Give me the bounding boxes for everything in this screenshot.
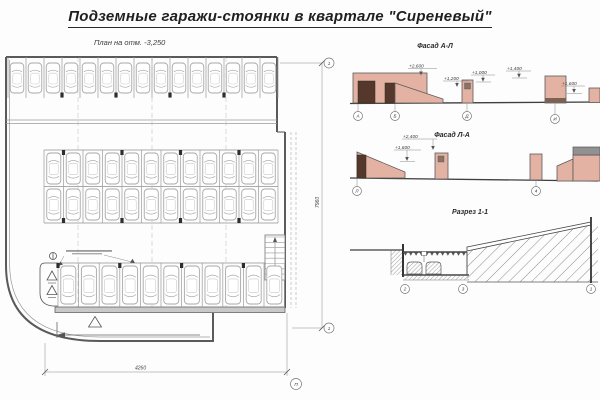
column-mark bbox=[168, 93, 171, 98]
car-top-view bbox=[102, 266, 117, 304]
axis-bubble: 4 bbox=[535, 189, 538, 194]
drawing-sheet: Подземные гаражи-стоянки в квартале "Сир… bbox=[0, 0, 600, 400]
ceiling-ribs bbox=[404, 252, 466, 256]
axis-bubble: 3 bbox=[462, 287, 465, 292]
parking-row-bottom bbox=[56, 263, 284, 307]
car-top-view bbox=[222, 189, 236, 220]
ramp-triangle-icon bbox=[89, 317, 102, 328]
car-top-view bbox=[226, 266, 241, 304]
column-mark bbox=[222, 93, 225, 98]
edge-block bbox=[589, 88, 600, 103]
plan-height-dim: 7960 bbox=[315, 197, 321, 208]
column-mark bbox=[180, 263, 183, 268]
car-top-view bbox=[123, 266, 138, 304]
column-mark bbox=[114, 93, 117, 98]
ramp-arrow bbox=[57, 317, 200, 339]
car-top-view bbox=[47, 153, 61, 184]
warning-triangle-icon bbox=[47, 271, 57, 280]
column-mark bbox=[56, 263, 59, 268]
car-top-view bbox=[28, 63, 42, 93]
car-top-view bbox=[86, 153, 100, 184]
car-top-view bbox=[203, 153, 217, 184]
car-side-view bbox=[407, 262, 422, 274]
column-mark bbox=[60, 93, 63, 98]
axes-f1: А Б Д И bbox=[354, 103, 560, 124]
column-mark bbox=[237, 150, 240, 155]
building-wing bbox=[557, 159, 573, 181]
alcove bbox=[40, 253, 58, 307]
facade-a-l-label: Фасад А-Л bbox=[417, 42, 453, 50]
car-top-view bbox=[262, 63, 276, 93]
car-top-view bbox=[164, 266, 179, 304]
parking-row-top bbox=[8, 57, 278, 98]
car-top-view bbox=[47, 189, 61, 220]
section-label: Разрез 1-1 bbox=[452, 209, 488, 216]
car-top-view bbox=[190, 63, 204, 93]
column-mark bbox=[242, 263, 245, 268]
sheet-title-text: Подземные гаражи-стоянки в квартале "Сир… bbox=[68, 8, 492, 28]
column-mark bbox=[62, 150, 65, 155]
warning-triangle-icon bbox=[47, 286, 57, 295]
car-top-view bbox=[222, 153, 236, 184]
car-top-view bbox=[261, 189, 275, 220]
sheet-title: Подземные гаражи-стоянки в квартале "Сир… bbox=[60, 8, 500, 28]
car-top-view bbox=[242, 153, 256, 184]
parking-row-mid-lower bbox=[44, 187, 278, 224]
section-1-1: Разрез 1-1 2 3 bbox=[350, 209, 598, 294]
column-mark bbox=[179, 218, 182, 223]
pillar bbox=[530, 154, 542, 180]
car-top-view bbox=[184, 266, 199, 304]
car-top-view bbox=[125, 189, 139, 220]
car-top-view bbox=[118, 63, 132, 93]
garage-door bbox=[385, 83, 395, 103]
car-top-view bbox=[164, 153, 178, 184]
car-top-view bbox=[164, 189, 178, 220]
axis-bubble: 2 bbox=[403, 287, 407, 292]
car-top-view bbox=[205, 266, 220, 304]
elevation-marks-f2: +2,400 +1,600 bbox=[394, 134, 437, 162]
car-top-view bbox=[81, 266, 96, 304]
plan-width-dim: 4260 bbox=[135, 366, 146, 372]
column-mark bbox=[120, 218, 123, 223]
axes-sec: 2 3 1 bbox=[401, 285, 596, 294]
column-mark bbox=[120, 150, 123, 155]
axis-bubble: А bbox=[355, 114, 359, 119]
car-top-view bbox=[100, 63, 114, 93]
car-top-view bbox=[10, 63, 24, 93]
illegible-annotation bbox=[58, 250, 135, 266]
section-mark-top: 1 bbox=[328, 61, 331, 66]
car-top-view bbox=[86, 189, 100, 220]
axes-f2: Л 4 bbox=[353, 178, 541, 196]
bottom-dimension: 4260 П bbox=[42, 313, 302, 390]
bottom-wall bbox=[55, 307, 285, 313]
facade-l-a: Фасад Л-А +2,400 +1,600 bbox=[350, 131, 600, 196]
right-dimension: 7960 1 1 bbox=[280, 58, 334, 333]
car-top-view bbox=[208, 63, 222, 93]
column-mark bbox=[62, 218, 65, 223]
car-side-view bbox=[426, 262, 441, 274]
car-top-view bbox=[66, 189, 80, 220]
axis-bubble: 1 bbox=[590, 287, 593, 292]
garage-door bbox=[358, 81, 375, 103]
car-top-view bbox=[246, 266, 261, 304]
elevations-drawing: Фасад А-Л +2,600 +1,200 +1,000 bbox=[345, 38, 600, 308]
column-mark bbox=[118, 263, 121, 268]
column-mark bbox=[179, 150, 182, 155]
car-top-view bbox=[154, 63, 168, 93]
car-top-view bbox=[61, 266, 76, 304]
car-top-view bbox=[82, 63, 96, 93]
earth-hatch bbox=[467, 224, 598, 283]
parking-row-mid-upper bbox=[44, 150, 278, 187]
car-top-view bbox=[261, 153, 275, 184]
car-top-view bbox=[183, 153, 197, 184]
car-top-view bbox=[125, 153, 139, 184]
facade-l-a-label: Фасад Л-А bbox=[434, 131, 470, 139]
column-mark bbox=[237, 218, 240, 223]
car-top-view bbox=[105, 189, 119, 220]
car-top-view bbox=[172, 63, 186, 93]
car-top-view bbox=[46, 63, 60, 93]
facade-a-l: Фасад А-Л +2,600 +1,200 +1,000 bbox=[350, 42, 600, 124]
car-top-view bbox=[64, 63, 78, 93]
floor-hatch bbox=[403, 275, 469, 280]
car-top-view bbox=[144, 189, 158, 220]
car-top-view bbox=[244, 63, 258, 93]
section-mark-bottom: 1 bbox=[328, 326, 331, 331]
car-top-view bbox=[183, 189, 197, 220]
wall-hatch bbox=[391, 250, 403, 275]
plan-caption: План на отм. -3,250 bbox=[94, 38, 165, 47]
sign bbox=[422, 252, 427, 256]
car-top-view bbox=[267, 266, 282, 304]
building-roof bbox=[573, 147, 600, 155]
car-top-view bbox=[144, 153, 158, 184]
building-body bbox=[573, 155, 600, 181]
car-top-view bbox=[136, 63, 150, 93]
car-top-view bbox=[203, 189, 217, 220]
car-top-view bbox=[66, 153, 80, 184]
car-top-view bbox=[242, 189, 256, 220]
plan-drawing: 7960 1 1 4260 П bbox=[0, 50, 340, 398]
axis-bubble: Б bbox=[394, 114, 397, 119]
car-top-view bbox=[105, 153, 119, 184]
garage-door bbox=[357, 155, 366, 178]
car-top-view bbox=[226, 63, 240, 93]
car-top-view bbox=[143, 266, 158, 304]
